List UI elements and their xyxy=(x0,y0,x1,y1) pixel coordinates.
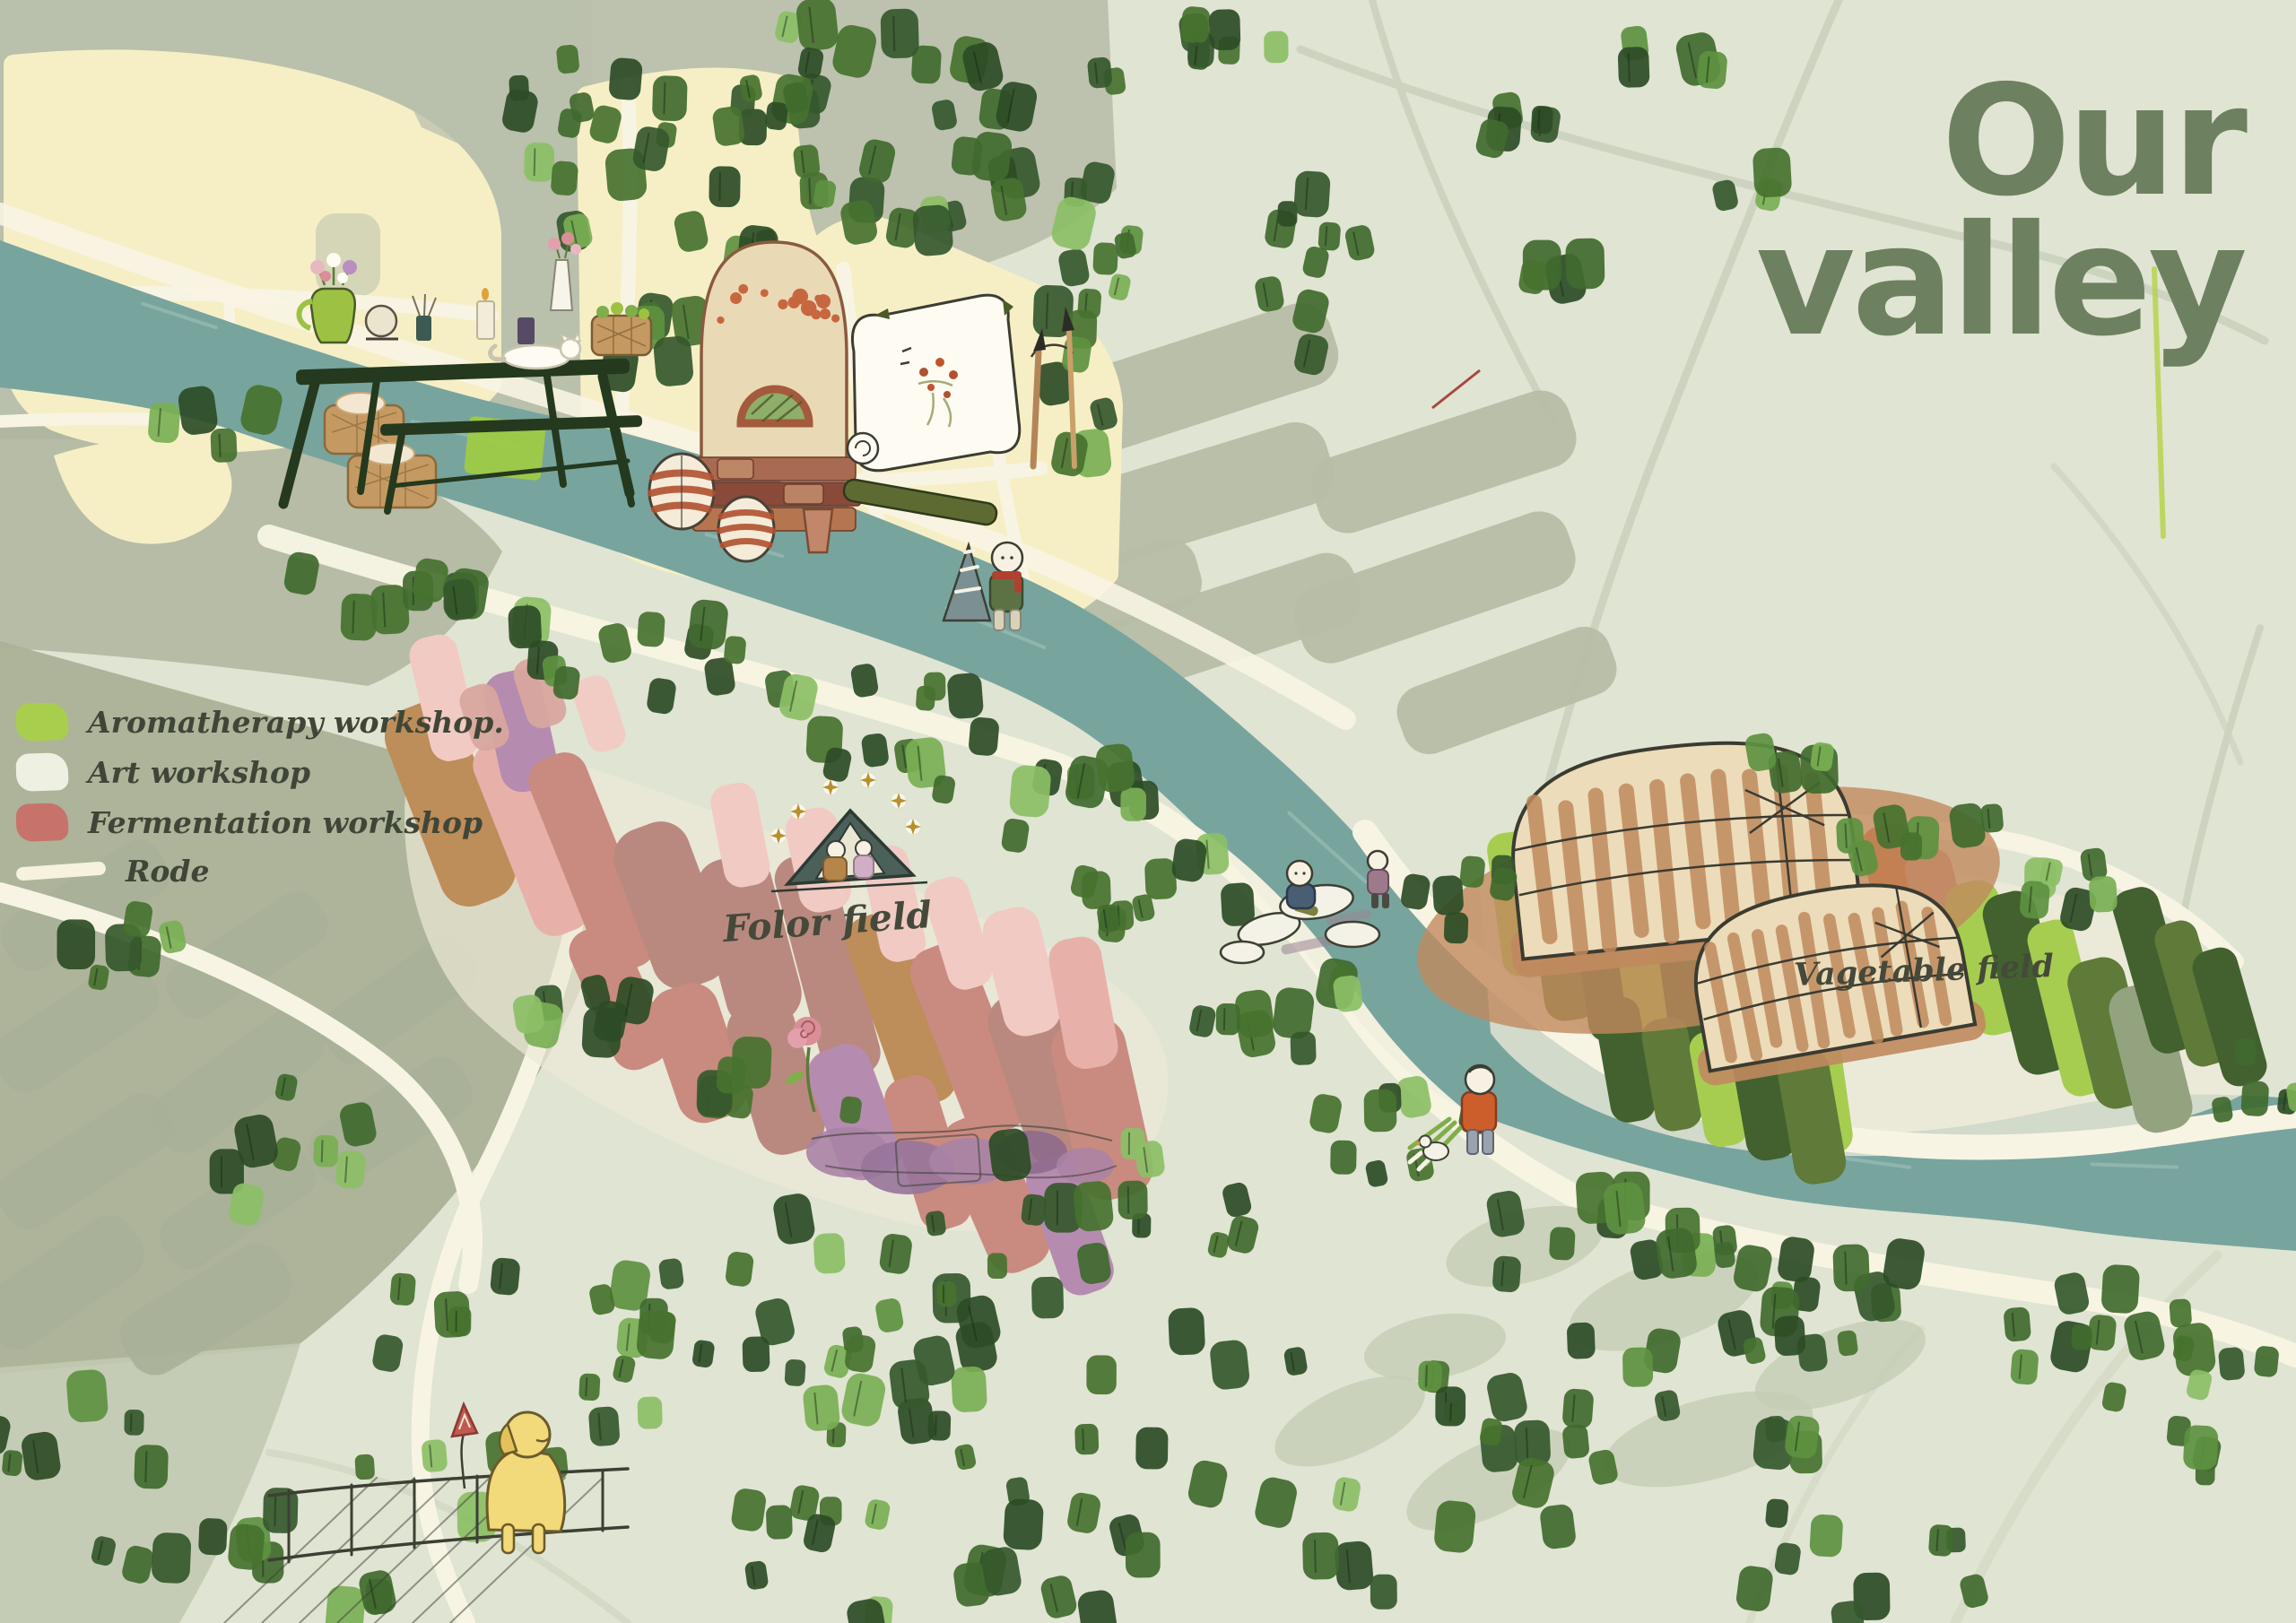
legend-swatch-fermentation xyxy=(15,803,68,842)
map-title-line2: valley xyxy=(1756,212,2244,352)
legend-swatch-aromatherapy xyxy=(15,702,68,742)
legend-item-art: Art workshop xyxy=(16,753,504,791)
legend-item-fermentation: Fermentation workshop xyxy=(16,803,504,841)
legend-swatch-rode xyxy=(16,862,107,881)
valley-map: Our valley Aromatherapy workshop.Art wor… xyxy=(0,0,2296,1623)
legend-swatch-art xyxy=(15,752,68,792)
map-title: Our valley xyxy=(1756,72,2244,352)
legend-item-rode: Rode xyxy=(16,854,504,889)
legend-label-aromatherapy: Aromatherapy workshop. xyxy=(88,705,504,740)
legend-label-rode: Rode xyxy=(126,854,210,889)
map-legend: Aromatherapy workshop.Art workshopFermen… xyxy=(16,703,504,889)
legend-label-art: Art workshop xyxy=(88,755,310,790)
map-title-line1: Our xyxy=(1756,72,2244,212)
legend-label-fermentation: Fermentation workshop xyxy=(88,805,483,840)
legend-item-aromatherapy: Aromatherapy workshop. xyxy=(16,703,504,741)
